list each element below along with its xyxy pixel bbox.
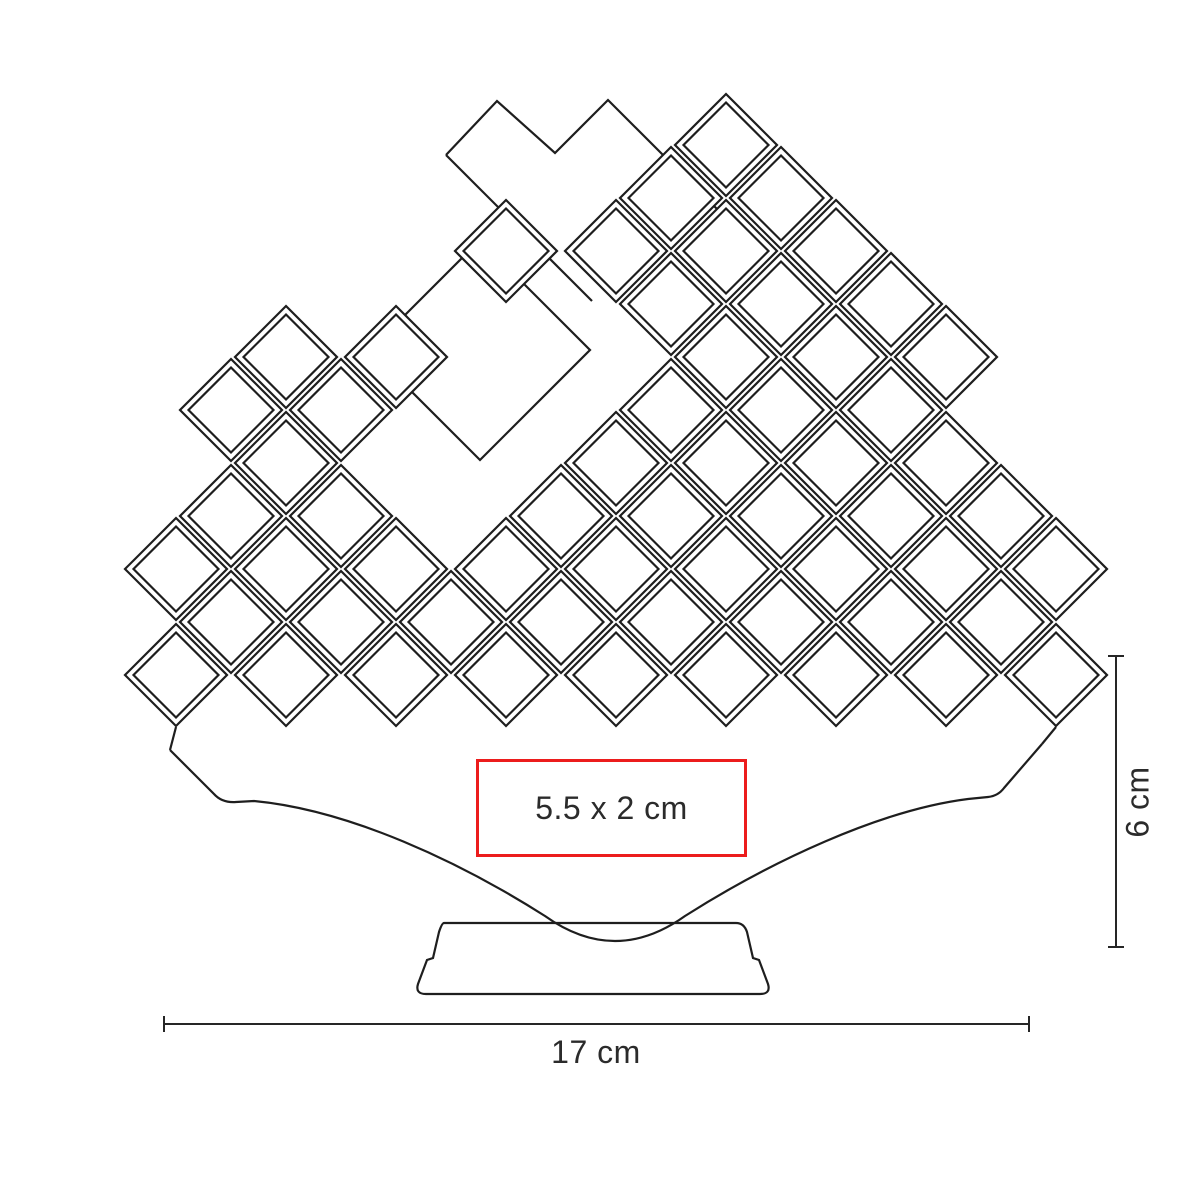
imprint-area-label: 5.5 x 2 cm [535, 792, 688, 824]
height-dimension-label: 6 cm [1120, 766, 1157, 837]
dimension-diagram: 5.5 x 2 cm 17 cm 6 cm [0, 0, 1200, 1200]
product-line-drawing [0, 0, 1200, 1200]
dimension-tick [163, 1016, 165, 1032]
width-dimension-line [163, 1023, 1030, 1025]
height-dimension-line [1115, 656, 1117, 948]
dimension-tick [1028, 1016, 1030, 1032]
dimension-tick [1108, 655, 1124, 657]
dimension-tick [1108, 946, 1124, 948]
width-dimension-label: 17 cm [551, 1034, 641, 1071]
imprint-area-box: 5.5 x 2 cm [476, 759, 747, 857]
